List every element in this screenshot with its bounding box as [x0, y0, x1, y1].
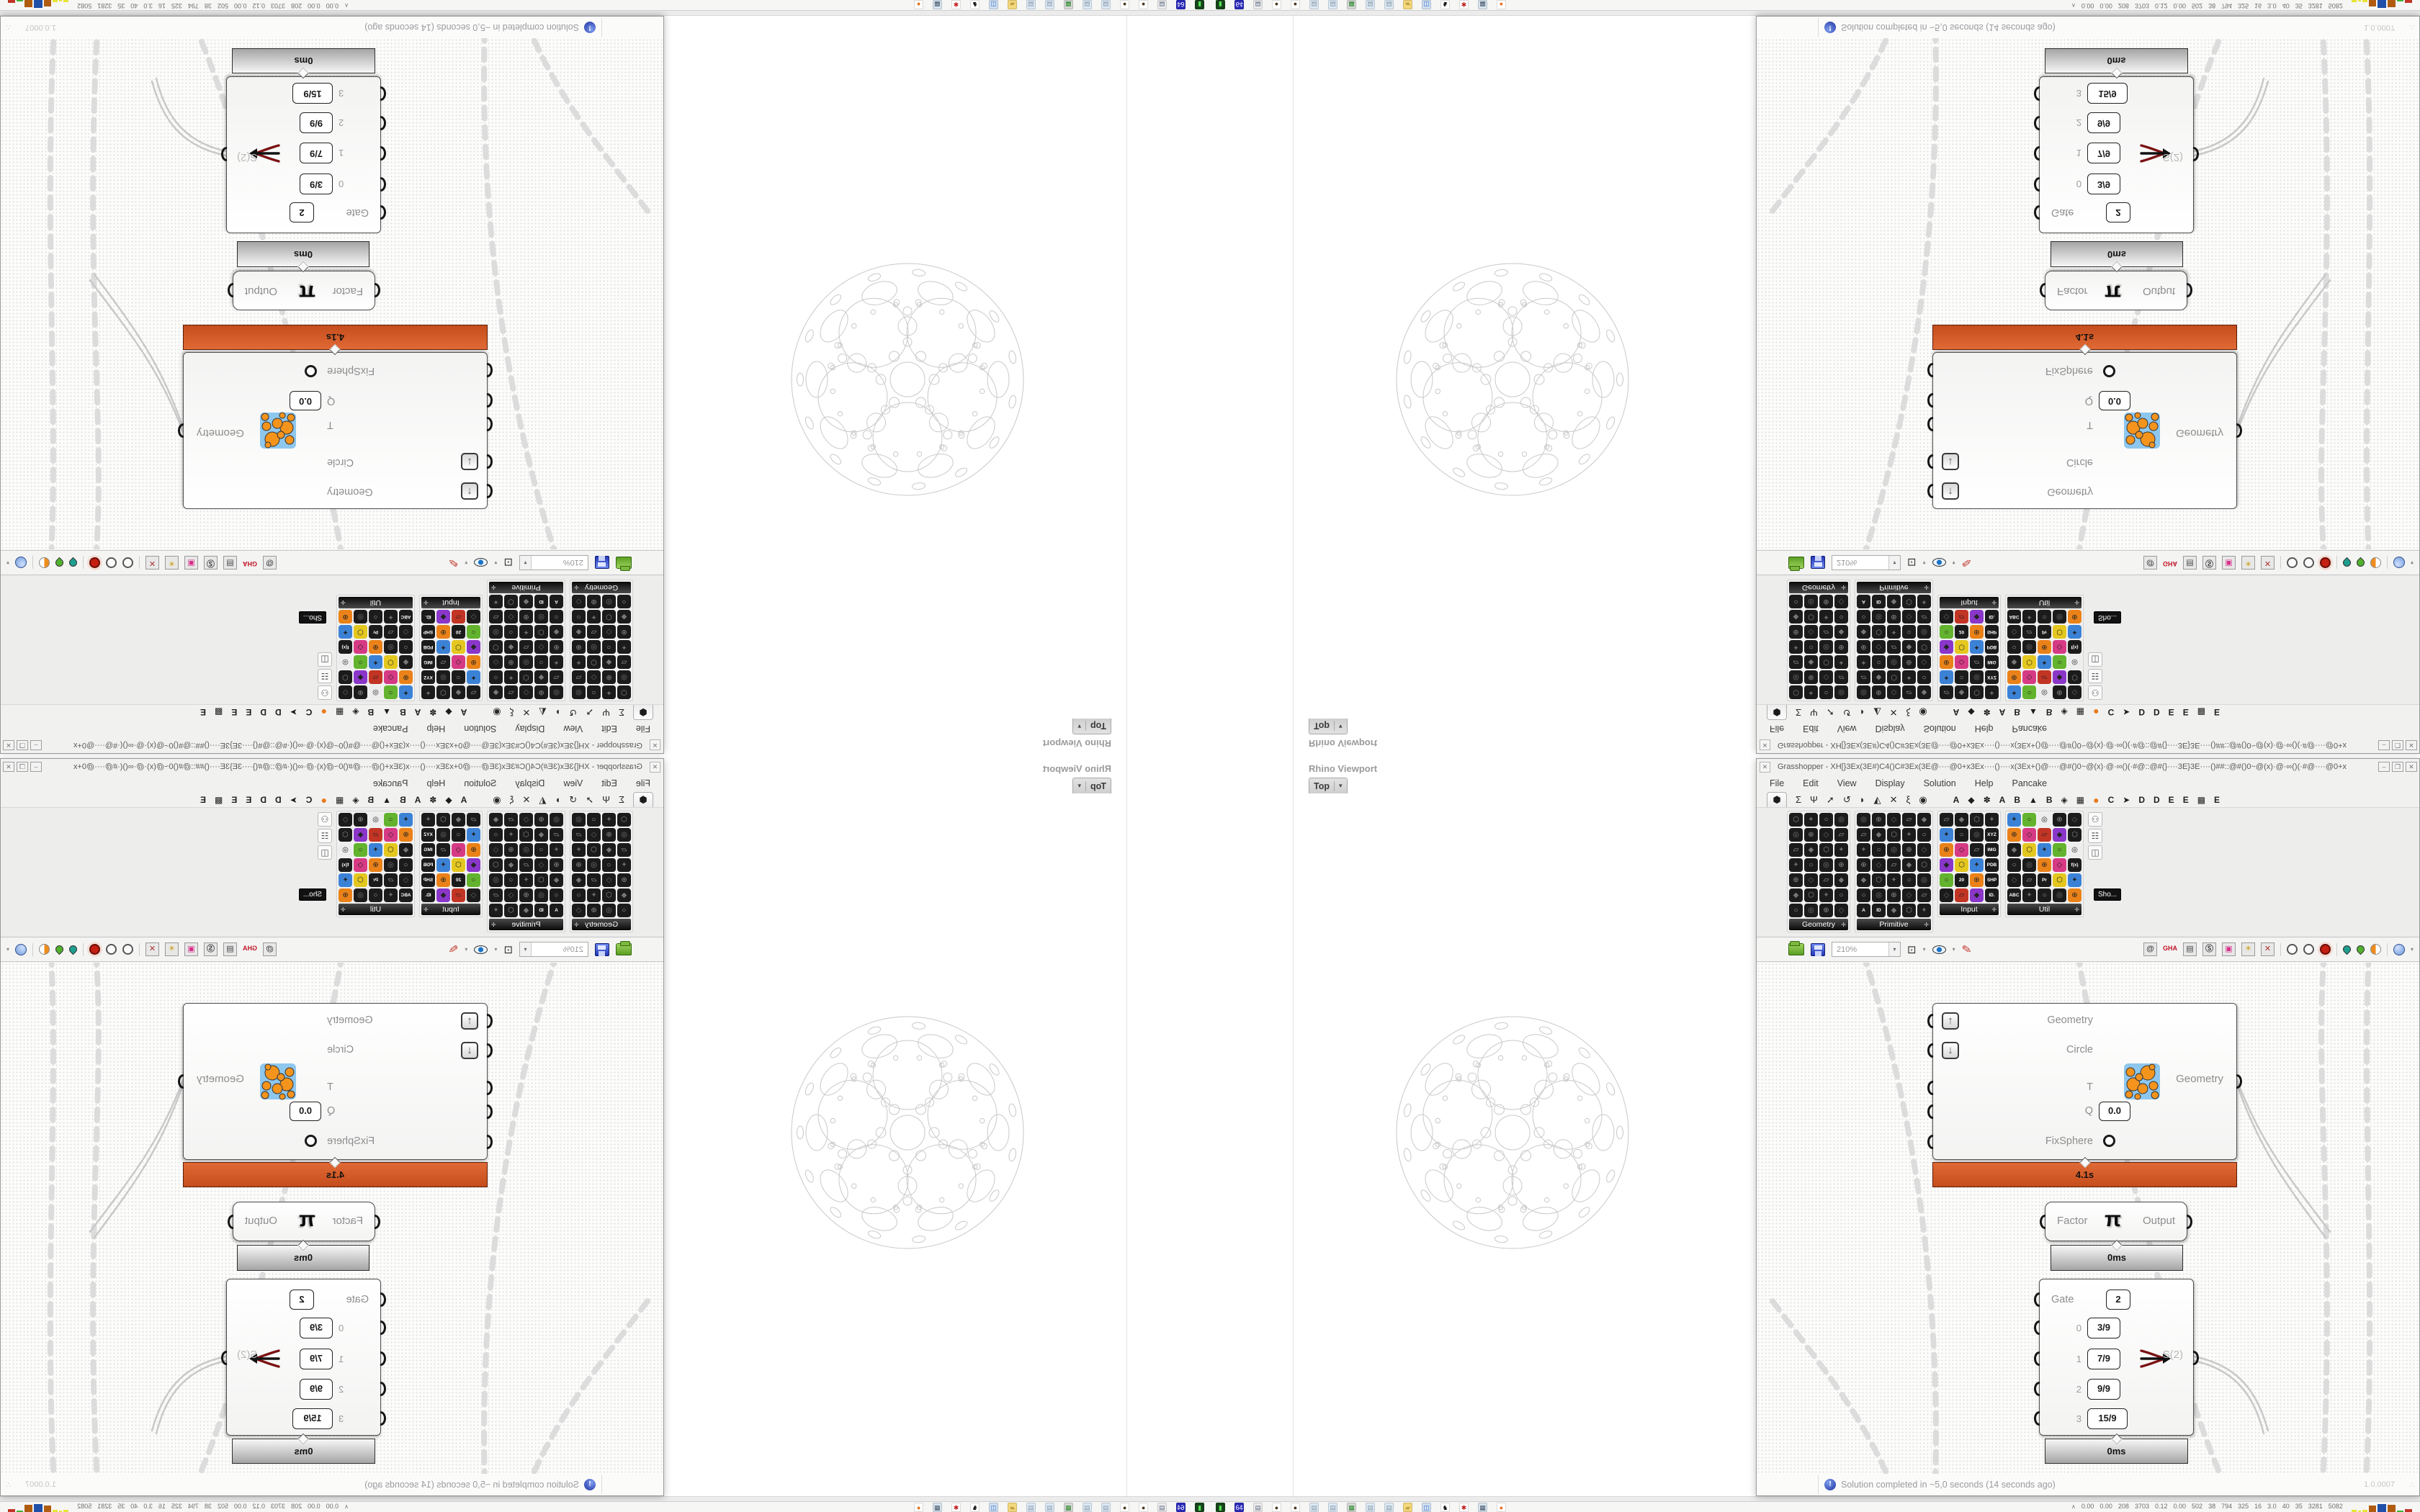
- menu-help[interactable]: Help: [1975, 724, 1994, 734]
- component-icon[interactable]: ◎: [534, 610, 548, 624]
- component-icon[interactable]: ◎: [1804, 595, 1818, 608]
- notepad-icon[interactable]: ▤: [1026, 1503, 1036, 1512]
- component-icon[interactable]: ⊕: [587, 904, 601, 917]
- component-icon[interactable]: ✦: [1804, 813, 1818, 827]
- chevron-down-icon[interactable]: ▾: [6, 946, 9, 953]
- category-tab-icon[interactable]: ◉: [1919, 705, 1927, 719]
- tab-params[interactable]: ⬢: [1767, 705, 1787, 720]
- component-icon[interactable]: ⊕: [369, 640, 382, 654]
- notes-window-icon[interactable]: ▤: [2183, 556, 2197, 570]
- tab-params[interactable]: ⬢: [1767, 792, 1787, 807]
- save-file-icon[interactable]: [1811, 943, 1825, 956]
- component-icon[interactable]: ✦: [1970, 858, 1984, 872]
- palette-label[interactable]: Primitive✛: [1857, 582, 1931, 593]
- notes-window-icon[interactable]: ▤: [223, 942, 237, 956]
- grasshopper-canvas[interactable]: Geometry ↑Geometry↓CircleTQ0.0FixSphere …: [1, 963, 663, 1474]
- plugin-tab[interactable]: B: [367, 705, 374, 719]
- grasshopper-title-bar[interactable]: ✕ Grasshopper - XH[}3Ex(3E#)C4()C#3Ex(3E…: [1, 737, 663, 753]
- menu-file[interactable]: File: [636, 778, 650, 788]
- plugin-tab[interactable]: A: [461, 705, 467, 719]
- wires-cross-icon[interactable]: ✕: [145, 556, 159, 570]
- plugin-tab[interactable]: D: [2154, 793, 2160, 807]
- component-icon[interactable]: ID: [534, 904, 548, 917]
- plugin-tab[interactable]: E: [2183, 705, 2189, 719]
- component-icon[interactable]: ◎: [1872, 888, 1886, 902]
- component-icon[interactable]: SHP: [421, 625, 435, 639]
- category-tab-icon[interactable]: ◭: [1874, 705, 1881, 719]
- component-icon[interactable]: ▱: [519, 858, 533, 872]
- firefox-icon[interactable]: ●: [914, 1503, 923, 1512]
- component-icon[interactable]: Pr: [369, 625, 382, 639]
- save-64-icon[interactable]: 64: [1176, 0, 1186, 9]
- calculator-icon[interactable]: ▦: [1478, 1503, 1487, 1512]
- category-tab-icon[interactable]: ◗: [555, 793, 560, 807]
- close-button[interactable]: ✕: [2406, 740, 2417, 750]
- value-box[interactable]: 3/9: [2087, 174, 2120, 194]
- component-icon[interactable]: ⬡: [587, 843, 601, 857]
- component-icon[interactable]: ○: [1789, 595, 1803, 608]
- fixsphere-component[interactable]: Geometry ↑Geometry↓CircleTQ0.0FixSphere: [1932, 1003, 2237, 1160]
- value-box[interactable]: 7/9: [2087, 143, 2120, 163]
- pin-icon[interactable]: [2355, 944, 2367, 955]
- component-icon[interactable]: ○: [504, 873, 518, 887]
- component-icon[interactable]: ◎: [617, 670, 631, 684]
- plugin-tab[interactable]: A: [1953, 705, 1960, 719]
- component-icon[interactable]: ⊕: [602, 828, 616, 842]
- search-icon[interactable]: Ⓢ: [2202, 942, 2216, 956]
- component-icon[interactable]: ◇: [384, 670, 398, 684]
- gate-input-port[interactable]: [375, 205, 386, 220]
- component-icon[interactable]: ⬡: [1819, 843, 1833, 857]
- component-icon[interactable]: ▱: [489, 888, 503, 902]
- component-icon[interactable]: ⬡: [1970, 813, 1984, 827]
- plugin-tab[interactable]: D: [2138, 793, 2145, 807]
- component-icon[interactable]: ◎: [354, 888, 367, 902]
- component-icon[interactable]: ⊕: [1789, 625, 1803, 639]
- input-port[interactable]: [375, 1411, 386, 1426]
- plugin-tab[interactable]: B: [400, 793, 406, 807]
- component-icon[interactable]: ✦: [2038, 655, 2051, 669]
- menu-pancake[interactable]: Pancake: [373, 724, 408, 734]
- input-port[interactable]: [2034, 86, 2045, 101]
- close-button[interactable]: ✕: [3, 762, 14, 772]
- stream-filter-component[interactable]: Gate 2 S(2) 03/917/929/9315/9: [226, 76, 381, 233]
- category-tab-icon[interactable]: Σ: [1796, 793, 1801, 807]
- component-icon[interactable]: ◆: [1857, 625, 1870, 639]
- plugin-tab[interactable]: D: [260, 705, 266, 719]
- value-box[interactable]: 0.0: [2099, 391, 2130, 410]
- notepad-icon[interactable]: ▤: [1328, 0, 1337, 9]
- component-icon[interactable]: ◇: [2068, 685, 2081, 699]
- component-icon[interactable]: PDB: [421, 640, 435, 654]
- component-icon[interactable]: ◎: [384, 640, 398, 654]
- component-icon[interactable]: ⊕: [1887, 610, 1901, 624]
- notepad-icon[interactable]: ▤: [1309, 0, 1319, 9]
- viewport-tab-top[interactable]: Top ▾: [1309, 719, 1348, 734]
- component-icon[interactable]: ▱: [1887, 640, 1901, 654]
- preview-mode-icon[interactable]: [106, 557, 117, 568]
- value-box[interactable]: 15/9: [2087, 83, 2128, 104]
- monitor-icon[interactable]: ▦: [1347, 1503, 1356, 1512]
- component-icon[interactable]: ⊕: [2053, 685, 2066, 699]
- chevron-down-icon[interactable]: ▾: [1077, 722, 1081, 730]
- component-icon[interactable]: ✦: [1887, 873, 1901, 887]
- component-icon[interactable]: ◇: [452, 655, 465, 669]
- component-icon[interactable]: ✦: [504, 670, 518, 684]
- palette-label[interactable]: Geometry✛: [572, 582, 631, 593]
- plugin-tab[interactable]: ➤: [2123, 793, 2130, 807]
- component-icon[interactable]: ⊕: [617, 873, 631, 887]
- resize-grip[interactable]: ∴: [5, 1480, 11, 1490]
- fixsphere-component[interactable]: Geometry ↑Geometry↓CircleTQ0.0FixSphere: [183, 352, 488, 509]
- component-icon[interactable]: ○: [2038, 888, 2051, 902]
- component-icon[interactable]: ⬡: [384, 843, 398, 857]
- component-icon[interactable]: ⊕: [436, 873, 450, 887]
- component-icon[interactable]: IMG: [1985, 655, 1999, 669]
- component-icon[interactable]: ⊕: [1902, 843, 1916, 857]
- component-icon[interactable]: ⬡: [2068, 670, 2081, 684]
- palette-label[interactable]: Primitive✛: [1857, 919, 1931, 930]
- plugin-tab[interactable]: A: [415, 705, 421, 719]
- component-icon[interactable]: ◇: [354, 858, 367, 872]
- zoom-extents-icon[interactable]: ⊡: [503, 557, 513, 570]
- component-icon[interactable]: ◎: [2022, 640, 2036, 654]
- component-icon[interactable]: ○: [467, 873, 480, 887]
- component-icon[interactable]: ⊕: [1940, 655, 1953, 669]
- walnut-icon[interactable]: ●: [1139, 0, 1148, 9]
- chevron-down-icon[interactable]: ▾: [465, 946, 467, 953]
- component-icon[interactable]: ⬡: [1789, 813, 1803, 827]
- component-icon[interactable]: ◇: [1872, 858, 1886, 872]
- category-tab-icon[interactable]: ◗: [1860, 793, 1865, 807]
- component-icon[interactable]: ID: [1872, 595, 1886, 608]
- component-icon[interactable]: ◆: [467, 640, 480, 654]
- plugin-tab[interactable]: ◈: [352, 793, 359, 807]
- menu-edit[interactable]: Edit: [601, 724, 617, 734]
- plugin-tab[interactable]: E: [200, 793, 206, 807]
- component-icon[interactable]: ⬡: [2068, 828, 2081, 842]
- plugin-tab[interactable]: ▩: [2197, 793, 2205, 807]
- notepad-icon[interactable]: ▤: [1101, 0, 1111, 9]
- menu-edit[interactable]: Edit: [601, 778, 617, 788]
- category-tab-icon[interactable]: ➚: [1827, 793, 1834, 807]
- chevron-down-icon[interactable]: ▾: [494, 559, 497, 566]
- plugin-tab[interactable]: ▲: [382, 793, 391, 807]
- remote-panel-icon[interactable]: @: [263, 942, 277, 956]
- value-box[interactable]: 7/9: [2087, 1349, 2120, 1369]
- component-icon[interactable]: ○: [452, 670, 465, 684]
- component-icon[interactable]: ◎: [1834, 685, 1848, 699]
- component-icon[interactable]: Pr: [369, 873, 382, 887]
- category-tab-icon[interactable]: Ψ: [602, 793, 610, 807]
- remote-panel-icon[interactable]: @: [2143, 556, 2157, 570]
- computer-icon[interactable]: ◫: [989, 1503, 998, 1512]
- print-notes-icon[interactable]: ▤: [1157, 1503, 1167, 1512]
- component-icon[interactable]: ◆: [1902, 640, 1916, 654]
- firefox-icon[interactable]: ●: [1497, 0, 1506, 9]
- component-icon[interactable]: ◇: [489, 843, 503, 857]
- component-icon[interactable]: ○: [572, 888, 586, 902]
- component-icon[interactable]: ⬡: [354, 625, 367, 639]
- input-port[interactable]: [375, 1351, 386, 1366]
- component-icon[interactable]: IMG: [421, 655, 435, 669]
- category-tab-icon[interactable]: ◉: [493, 705, 501, 719]
- component-icon[interactable]: ◇: [534, 640, 548, 654]
- plugin-tab[interactable]: ▩: [2197, 705, 2205, 719]
- component-icon[interactable]: ⬡: [384, 655, 398, 669]
- menu-display[interactable]: Display: [515, 724, 544, 734]
- component-icon[interactable]: ◆: [2007, 843, 2021, 857]
- preview-mode-icon[interactable]: [89, 944, 100, 955]
- category-tab-icon[interactable]: ◗: [1860, 705, 1865, 719]
- component-icon[interactable]: ⊕: [2007, 670, 2021, 684]
- component-icon[interactable]: ◇: [467, 888, 480, 902]
- component-icon[interactable]: ◇: [1872, 640, 1886, 654]
- component-icon[interactable]: ○: [617, 904, 631, 917]
- component-icon[interactable]: ◆: [1872, 670, 1886, 684]
- component-icon[interactable]: IMG: [1985, 843, 1999, 857]
- component-icon[interactable]: ⊕: [1902, 655, 1916, 669]
- output-port[interactable]: [228, 283, 238, 297]
- component-icon[interactable]: ◎: [1917, 873, 1931, 887]
- gate-value-box[interactable]: 2: [2106, 202, 2130, 222]
- component-icon[interactable]: ▱: [384, 625, 398, 639]
- component-icon[interactable]: ◆: [399, 655, 413, 669]
- component-icon[interactable]: ✦: [1804, 685, 1818, 699]
- palette-label[interactable]: Primitive✛: [489, 919, 563, 930]
- component-icon[interactable]: A: [1857, 595, 1870, 608]
- component-icon[interactable]: ◇: [1955, 655, 1968, 669]
- plugin-tab[interactable]: ▲: [2029, 793, 2038, 807]
- component-icon[interactable]: ◆: [550, 625, 563, 639]
- component-icon[interactable]: ◆: [1955, 685, 1968, 699]
- viewport-tab-top[interactable]: Top ▾: [1309, 778, 1348, 793]
- save-file-icon[interactable]: [1811, 557, 1825, 570]
- zoom-extents-icon[interactable]: ⊡: [1907, 943, 1917, 956]
- component-icon[interactable]: ▱: [2022, 625, 2036, 639]
- component-icon[interactable]: ⊕: [534, 813, 548, 827]
- component-icon[interactable]: ⬡: [1872, 873, 1886, 887]
- component-icon[interactable]: ◎: [602, 904, 616, 917]
- component-icon[interactable]: ◎: [572, 813, 586, 827]
- chevron-down-icon[interactable]: ▾: [520, 556, 532, 570]
- component-icon[interactable]: ▱: [550, 670, 563, 684]
- stream-filter-component[interactable]: Gate 2 S(2) 03/917/929/9315/9: [2039, 76, 2194, 233]
- component-icon[interactable]: ◆: [519, 904, 533, 917]
- component-icon[interactable]: ⬡: [1955, 640, 1968, 654]
- minimize-button[interactable]: –: [30, 762, 42, 772]
- plugin-tab[interactable]: ➤: [290, 705, 297, 719]
- component-icon[interactable]: ◇: [2053, 640, 2066, 654]
- folder-icon[interactable]: ▰: [1008, 1503, 1017, 1512]
- half-sphere-icon[interactable]: [39, 557, 50, 568]
- maximize-button[interactable]: ❒: [17, 740, 28, 750]
- component-icon[interactable]: ◎: [489, 873, 503, 887]
- category-tab-icon[interactable]: ◗: [555, 705, 560, 719]
- chevron-down-icon[interactable]: ▾: [1923, 946, 1926, 953]
- component-icon[interactable]: ▱: [1789, 843, 1803, 857]
- component-icon[interactable]: ⊕: [369, 858, 382, 872]
- component-icon[interactable]: ▱: [1789, 655, 1803, 669]
- component-icon[interactable]: ▱: [1955, 888, 1968, 902]
- component-icon[interactable]: ◎: [436, 670, 450, 684]
- component-icon[interactable]: ✦: [617, 640, 631, 654]
- notepad-icon[interactable]: ▤: [1083, 1503, 1092, 1512]
- component-icon[interactable]: ◆: [452, 685, 465, 699]
- component-icon[interactable]: ID: [1872, 904, 1886, 917]
- category-tab-icon[interactable]: ◭: [539, 705, 546, 719]
- component-icon[interactable]: ✦: [369, 655, 382, 669]
- gate-input-port[interactable]: [375, 1292, 386, 1307]
- component-icon[interactable]: XYZ: [421, 670, 435, 684]
- component-icon[interactable]: ABC: [399, 888, 413, 902]
- plugin-tab[interactable]: ◈: [2061, 793, 2068, 807]
- component-icon[interactable]: ⬡: [534, 873, 548, 887]
- open-file-icon[interactable]: [616, 943, 632, 955]
- walnut-icon[interactable]: ●: [1291, 0, 1300, 9]
- component-icon[interactable]: 20: [452, 873, 465, 887]
- value-box[interactable]: 9/9: [300, 112, 333, 133]
- component-icon[interactable]: ○: [587, 685, 601, 699]
- component-icon[interactable]: ◆: [572, 625, 586, 639]
- plugin-tab[interactable]: E: [246, 705, 251, 719]
- viewport-tab-top[interactable]: Top ▾: [1072, 778, 1111, 793]
- component-icon[interactable]: ◎: [1887, 843, 1901, 857]
- input-port[interactable]: [2034, 116, 2045, 130]
- component-icon[interactable]: ◇: [467, 610, 480, 624]
- component-icon[interactable]: ✦: [519, 873, 533, 887]
- component-icon[interactable]: ○: [1789, 904, 1803, 917]
- component-icon[interactable]: ◇: [587, 670, 601, 684]
- menu-display[interactable]: Display: [1875, 778, 1905, 788]
- component-icon[interactable]: ✦: [1819, 610, 1833, 624]
- component-icon[interactable]: ◎: [602, 595, 616, 608]
- component-icon[interactable]: ▱: [467, 813, 480, 827]
- chevron-down-icon[interactable]: ▾: [2411, 946, 2414, 953]
- plugin-tab[interactable]: A: [1953, 793, 1960, 807]
- component-icon[interactable]: ○: [1955, 828, 1968, 842]
- component-icon[interactable]: ◎: [2022, 858, 2036, 872]
- component-icon[interactable]: ▱: [519, 640, 533, 654]
- component-icon[interactable]: ▱: [384, 873, 398, 887]
- palette-overflow-icon[interactable]: ⚇: [318, 685, 332, 700]
- component-icon[interactable]: ◎: [1789, 670, 1803, 684]
- category-tab-icon[interactable]: Ψ: [602, 705, 610, 719]
- component-icon[interactable]: ✦: [467, 670, 480, 684]
- component-icon[interactable]: ◇: [602, 873, 616, 887]
- palette-overflow-icon[interactable]: ☷: [2088, 829, 2102, 843]
- component-icon[interactable]: ◇: [399, 625, 413, 639]
- component-icon[interactable]: ◆: [519, 595, 533, 608]
- computer-icon[interactable]: ◫: [989, 0, 998, 9]
- palette-overflow-icon[interactable]: ◫: [2088, 845, 2102, 860]
- component-icon[interactable]: ⊕: [572, 858, 586, 872]
- component-icon[interactable]: ✦: [602, 813, 616, 827]
- open-file-icon[interactable]: [1788, 943, 1804, 955]
- component-icon[interactable]: ▱: [1940, 813, 1953, 827]
- component-icon[interactable]: ◇: [384, 828, 398, 842]
- component-icon[interactable]: ⊕: [2053, 813, 2066, 827]
- component-icon[interactable]: ○: [1857, 888, 1870, 902]
- menu-view[interactable]: View: [1837, 724, 1857, 734]
- component-icon[interactable]: ◇: [489, 655, 503, 669]
- output-port[interactable]: [2182, 1215, 2192, 1229]
- component-icon[interactable]: IMG: [421, 843, 435, 857]
- palette-overflow-icon[interactable]: ☷: [2088, 669, 2102, 683]
- component-icon[interactable]: ◇: [534, 858, 548, 872]
- component-icon[interactable]: ⬡: [602, 888, 616, 902]
- component-icon[interactable]: ◇: [519, 813, 533, 827]
- component-icon[interactable]: ◇: [2022, 828, 2036, 842]
- input-port[interactable]: [2034, 1351, 2045, 1366]
- component-icon[interactable]: ○: [384, 813, 398, 827]
- component-icon[interactable]: ▱: [587, 625, 601, 639]
- component-icon[interactable]: ○: [602, 640, 616, 654]
- save-64-icon[interactable]: 64: [1234, 0, 1244, 9]
- component-icon[interactable]: ◇: [2007, 625, 2021, 639]
- component-icon[interactable]: ✦: [587, 610, 601, 624]
- component-icon[interactable]: ✦: [1902, 828, 1916, 842]
- grasshopper-canvas[interactable]: Geometry ↑Geometry↓CircleTQ0.0FixSphere …: [1757, 963, 2419, 1474]
- component-icon[interactable]: ✦: [572, 843, 586, 857]
- notepad-icon[interactable]: ▤: [1366, 0, 1375, 9]
- component-icon[interactable]: ◎: [2053, 610, 2066, 624]
- component-icon[interactable]: ABC: [399, 610, 413, 624]
- component-icon[interactable]: ⊕: [339, 888, 352, 902]
- pin-icon[interactable]: [2341, 944, 2353, 955]
- component-icon[interactable]: ✦: [1834, 843, 1848, 857]
- component-icon[interactable]: ⬡: [2053, 625, 2066, 639]
- component-icon[interactable]: ✦: [339, 873, 352, 887]
- component-icon[interactable]: ⬡: [617, 813, 631, 827]
- menu-solution[interactable]: Solution: [1924, 724, 1956, 734]
- idea-lamp-icon[interactable]: ☀: [2241, 942, 2255, 956]
- component-icon[interactable]: ⬡: [1917, 640, 1931, 654]
- component-icon[interactable]: ⬡: [1955, 858, 1968, 872]
- grasshopper-canvas[interactable]: Geometry ↑Geometry↓CircleTQ0.0FixSphere …: [1757, 38, 2419, 549]
- component-icon[interactable]: ⊕: [436, 625, 450, 639]
- component-icon[interactable]: ⊕: [1887, 888, 1901, 902]
- component-icon[interactable]: ⊕: [1834, 640, 1848, 654]
- component-icon[interactable]: ▱: [550, 828, 563, 842]
- component-icon[interactable]: ▱: [617, 843, 631, 857]
- component-icon[interactable]: ◎: [2068, 843, 2081, 857]
- component-icon[interactable]: ◆: [489, 813, 503, 827]
- component-icon[interactable]: ◎: [384, 858, 398, 872]
- category-tab-icon[interactable]: ◭: [1874, 793, 1881, 807]
- palette-label[interactable]: Util✛: [2007, 597, 2081, 608]
- notepad-icon[interactable]: ▤: [1101, 1503, 1111, 1512]
- component-icon[interactable]: ⬡: [1917, 858, 1931, 872]
- cat-icon[interactable]: ♞: [1440, 0, 1450, 9]
- gha-assembly-icon[interactable]: GHA: [2163, 942, 2177, 956]
- gate-value-box[interactable]: 2: [290, 1290, 314, 1310]
- component-icon[interactable]: ⬡: [339, 828, 352, 842]
- plugin-tab[interactable]: E: [2214, 705, 2220, 719]
- component-icon[interactable]: f(x): [339, 640, 352, 654]
- panel-close-icon[interactable]: ✕: [650, 762, 660, 773]
- preview-mode-icon[interactable]: [2303, 557, 2314, 568]
- zoom-select[interactable]: 210% ▾: [1832, 555, 1901, 570]
- component-icon[interactable]: ✦: [1970, 640, 1984, 654]
- monitor-icon[interactable]: ▦: [1064, 0, 1073, 9]
- component-icon[interactable]: ◎: [1970, 670, 1984, 684]
- component-icon[interactable]: ◇: [1804, 873, 1818, 887]
- category-tab-icon[interactable]: ➚: [1827, 705, 1834, 719]
- idea-lamp-icon[interactable]: ☀: [165, 942, 179, 956]
- output-port[interactable]: [2182, 283, 2192, 297]
- component-icon[interactable]: ID.: [421, 888, 435, 902]
